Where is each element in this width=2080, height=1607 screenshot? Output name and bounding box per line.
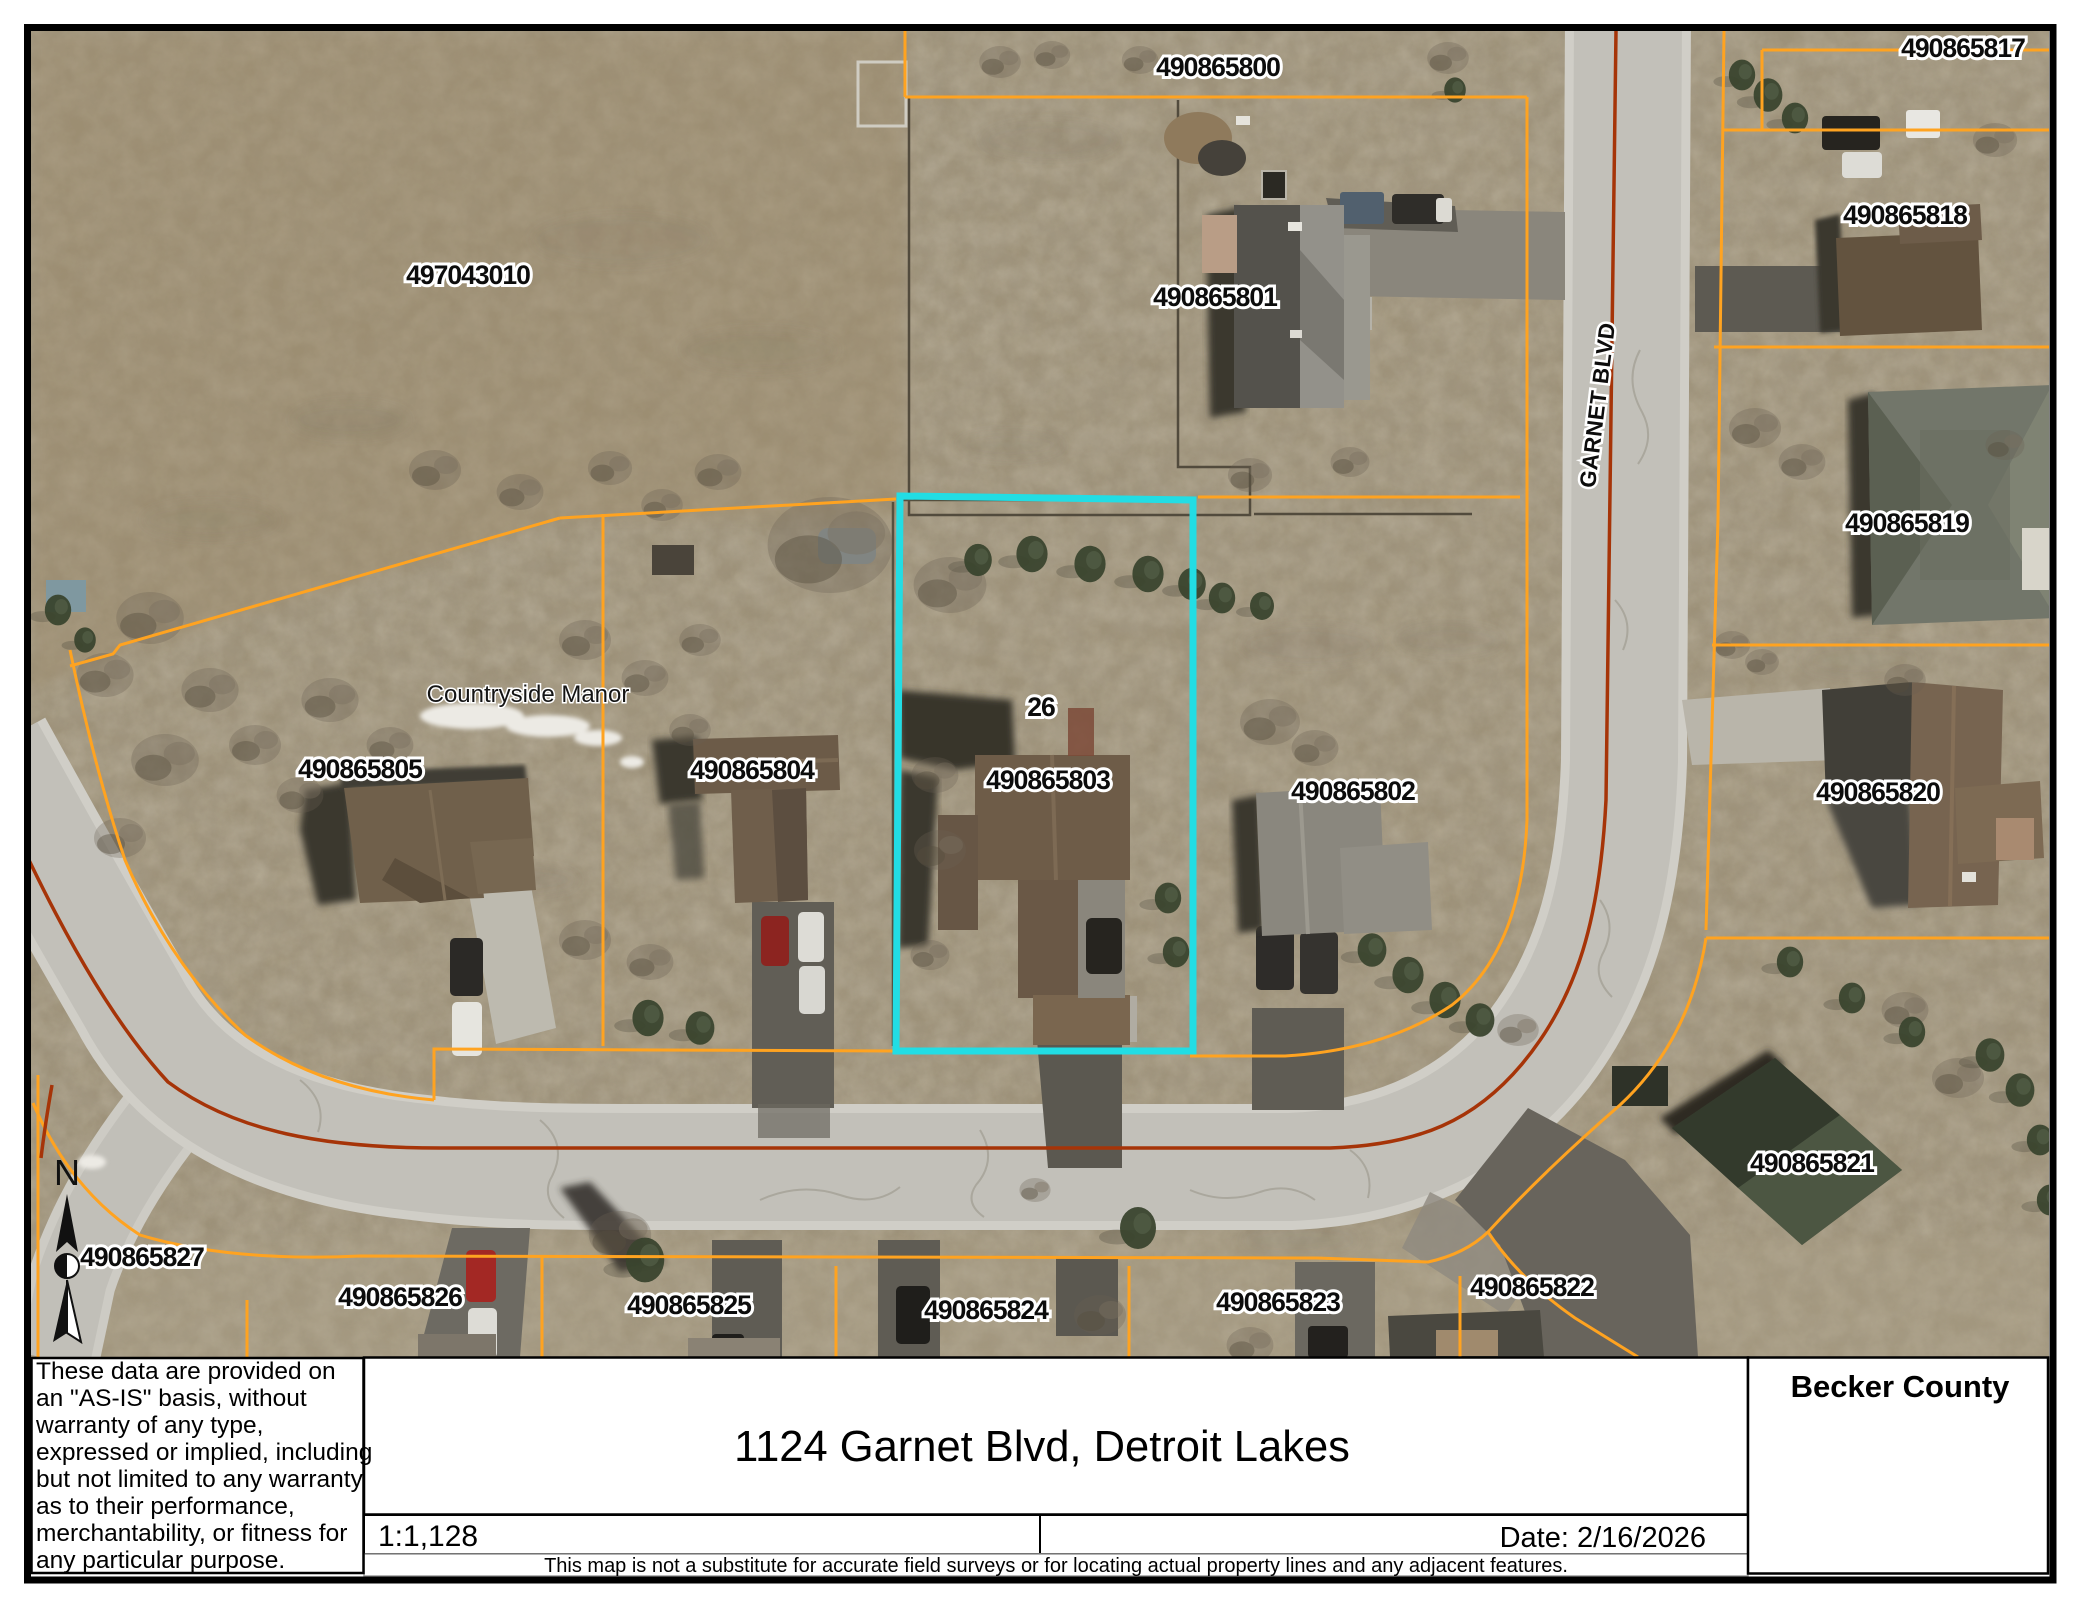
- svg-text:warranty of any type,: warranty of any type,: [35, 1412, 263, 1439]
- svg-text:Countryside Manor: Countryside Manor: [427, 681, 630, 708]
- svg-text:as to their performance,: as to their performance,: [36, 1493, 295, 1520]
- svg-text:Date: 2/16/2026: Date: 2/16/2026: [1500, 1522, 1706, 1554]
- svg-text:490865822: 490865822: [1470, 1272, 1594, 1302]
- svg-text:490865800: 490865800: [1156, 52, 1280, 82]
- svg-text:490865818: 490865818: [1843, 200, 1967, 230]
- svg-text:490865824: 490865824: [924, 1295, 1049, 1325]
- svg-text:490865805: 490865805: [298, 754, 422, 784]
- svg-text:any particular purpose.: any particular purpose.: [36, 1547, 285, 1574]
- svg-text:490865801: 490865801: [1153, 282, 1277, 312]
- svg-text:This map is not a substitute f: This map is not a substitute for accurat…: [544, 1555, 1568, 1577]
- svg-text:490865817: 490865817: [1901, 33, 2025, 63]
- svg-text:490865802: 490865802: [1291, 776, 1415, 806]
- svg-text:merchantability, or fitness fo: merchantability, or fitness for: [36, 1520, 347, 1547]
- svg-text:490865825: 490865825: [627, 1290, 751, 1320]
- svg-text:490865803: 490865803: [986, 765, 1110, 795]
- svg-text:N: N: [54, 1152, 80, 1193]
- svg-text:but not limited to any warrant: but not limited to any warranty: [36, 1466, 364, 1493]
- svg-text:Becker County: Becker County: [1791, 1369, 2011, 1404]
- svg-text:490865827: 490865827: [80, 1242, 204, 1272]
- svg-text:490865821: 490865821: [1750, 1148, 1874, 1178]
- svg-text:1:1,128: 1:1,128: [378, 1520, 478, 1553]
- svg-text:an "AS-IS" basis, without: an "AS-IS" basis, without: [36, 1385, 307, 1412]
- svg-text:These data are provided on: These data are provided on: [36, 1358, 336, 1385]
- svg-text:expressed or implied, includin: expressed or implied, including: [36, 1439, 372, 1466]
- svg-text:1124 Garnet Blvd, Detroit Lake: 1124 Garnet Blvd, Detroit Lakes: [734, 1423, 1350, 1471]
- svg-text:26: 26: [1027, 692, 1055, 722]
- svg-text:490865819: 490865819: [1845, 508, 1969, 538]
- svg-text:490865823: 490865823: [1216, 1287, 1340, 1317]
- svg-text:497043010: 497043010: [406, 260, 530, 290]
- svg-text:490865804: 490865804: [690, 755, 815, 785]
- svg-text:490865826: 490865826: [338, 1282, 462, 1312]
- svg-text:490865820: 490865820: [1816, 777, 1940, 807]
